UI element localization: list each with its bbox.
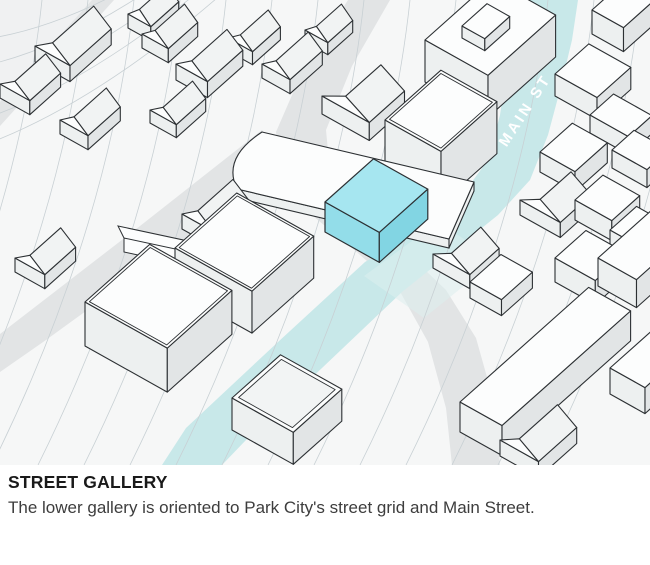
axonometric-site-map: MAIN ST [0, 0, 650, 465]
caption-body: The lower gallery is oriented to Park Ci… [8, 496, 568, 520]
site-map: MAIN ST [0, 0, 650, 465]
street-gallery-figure: MAIN ST STREET GALLERY The lower gallery… [0, 0, 650, 565]
figure-caption: STREET GALLERY The lower gallery is orie… [8, 472, 608, 520]
caption-title: STREET GALLERY [8, 472, 608, 493]
